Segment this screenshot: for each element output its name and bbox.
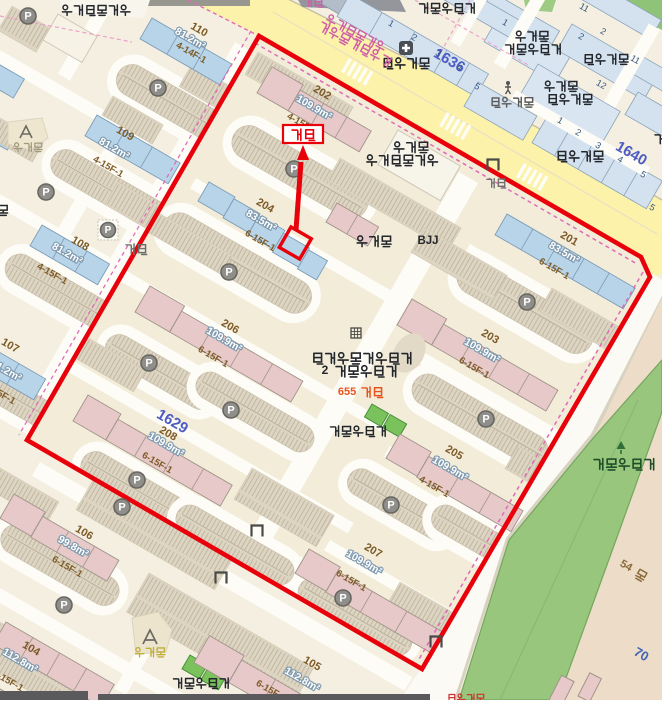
svg-text:P: P [482, 413, 489, 425]
svg-text:P: P [339, 592, 346, 604]
svg-text:P: P [290, 163, 297, 175]
svg-text:P: P [387, 499, 394, 511]
svg-text:655: 655 [338, 386, 356, 398]
svg-text:P: P [225, 266, 232, 278]
svg-text:P: P [154, 82, 161, 94]
svg-text:2: 2 [322, 363, 329, 377]
svg-text:P: P [118, 501, 125, 513]
svg-text:P: P [24, 10, 31, 22]
svg-text:BJJ: BJJ [417, 235, 438, 247]
svg-text:P: P [42, 186, 49, 198]
svg-text:P: P [60, 599, 67, 611]
svg-text:P: P [227, 404, 234, 416]
svg-text:P: P [105, 225, 112, 236]
svg-text:P: P [145, 357, 152, 369]
svg-text:P: P [523, 296, 530, 308]
svg-text:P: P [133, 474, 140, 486]
